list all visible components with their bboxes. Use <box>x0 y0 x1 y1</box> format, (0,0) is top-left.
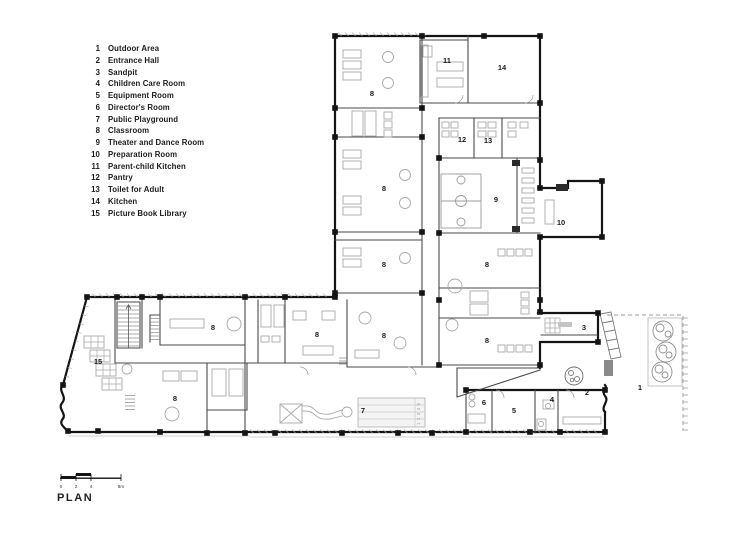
playground-platform: 1 2 3 4 5 <box>358 398 425 427</box>
floor-plan-page: 1Outdoor Area2Entrance Hall3Sandpit4Chil… <box>0 0 750 534</box>
scale-tick-label: 2 <box>75 484 78 489</box>
outdoor-area <box>607 315 683 431</box>
room-label: 8 <box>173 394 177 403</box>
scale-tick-label: 4 <box>90 484 93 489</box>
room-label: 5 <box>512 406 516 415</box>
entrance-ramp <box>565 312 621 385</box>
room-label: 8 <box>211 323 215 332</box>
room-label: 15 <box>94 357 102 366</box>
scale-tick-label: 0 <box>60 484 63 489</box>
room-label: 11 <box>443 56 451 65</box>
room-label: 10 <box>557 218 565 227</box>
scale-tick-label: 8m <box>118 484 125 489</box>
room-label: 1 <box>638 383 642 392</box>
room-label: 8 <box>382 184 386 193</box>
height-ruler: 1 2 3 4 5 <box>416 403 421 426</box>
tree-icon <box>652 321 676 382</box>
room-label: 2 <box>585 388 589 397</box>
room-label: 7 <box>361 406 365 415</box>
slide <box>280 404 352 423</box>
room-label: 8 <box>485 260 489 269</box>
room-label: 14 <box>498 63 507 72</box>
room-label: 13 <box>484 136 492 145</box>
furniture-layer <box>63 33 688 438</box>
room-label: 6 <box>482 398 486 407</box>
scale-tick-labels: 0248m <box>60 484 125 489</box>
sandpit-detail <box>545 318 572 333</box>
room-label: 9 <box>494 195 498 204</box>
room-labels: 81114121389108888881587654231 <box>94 56 642 415</box>
room-label: 3 <box>582 323 586 332</box>
room-label: 8 <box>485 336 489 345</box>
interior-walls <box>115 36 597 433</box>
room-label: 8 <box>370 89 374 98</box>
plan-title: PLAN <box>57 492 93 504</box>
scale-bar: 0248m <box>60 473 125 489</box>
basketball-court <box>441 174 481 228</box>
room-label: 8 <box>315 330 319 339</box>
room-label: 8 <box>382 260 386 269</box>
room-label: 8 <box>382 331 386 340</box>
floor-plan-drawing: 1 2 3 4 5 <box>0 0 750 534</box>
room-label: 12 <box>458 135 466 144</box>
